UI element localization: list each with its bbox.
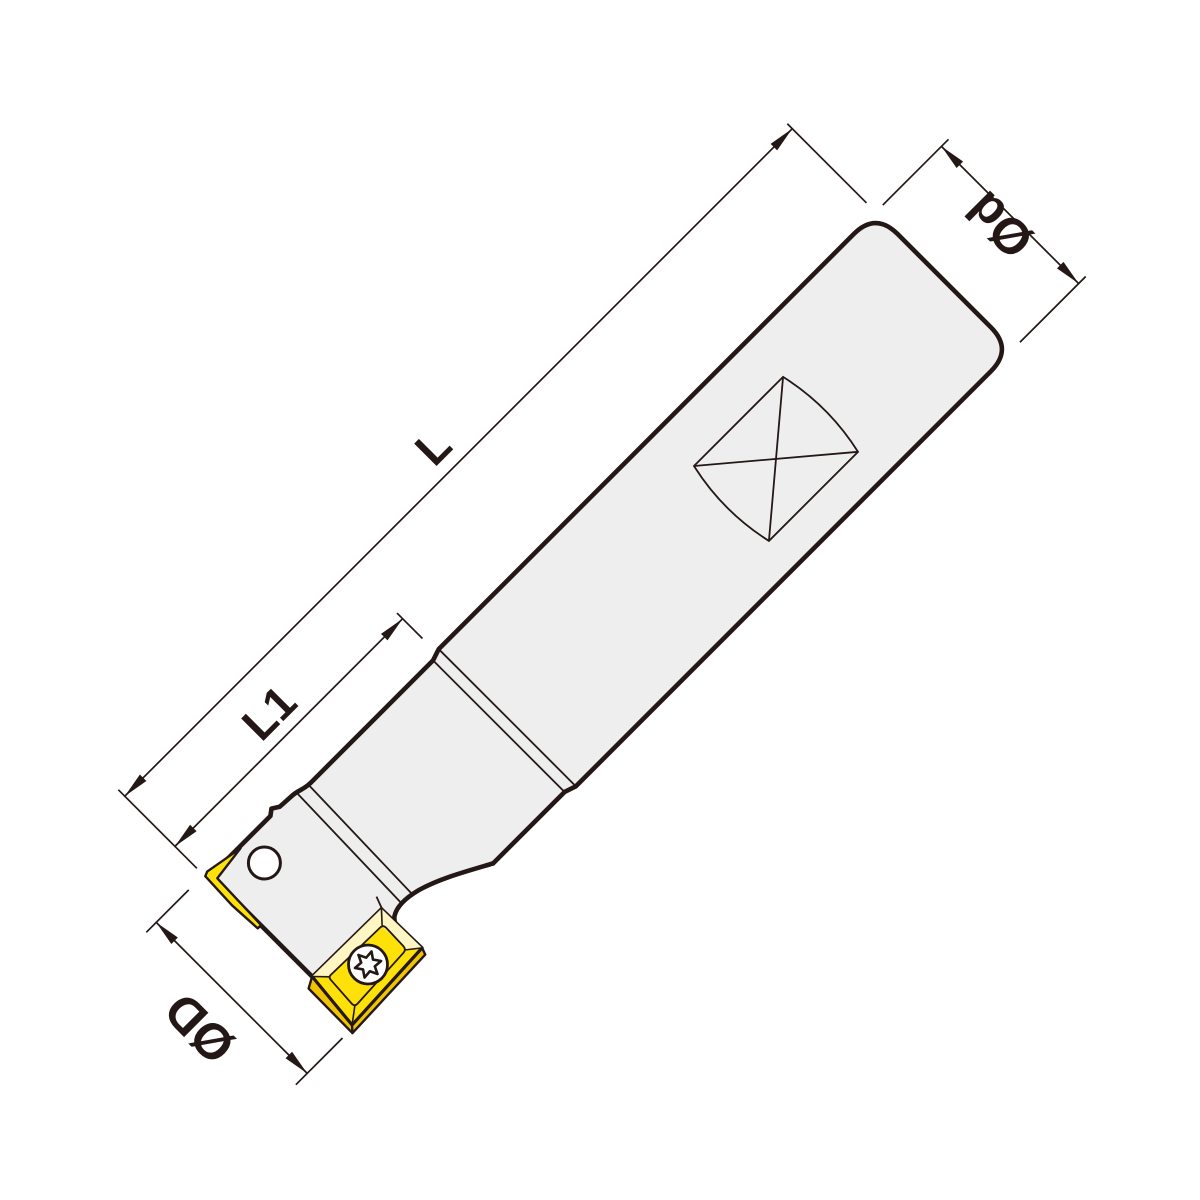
extension-line-cutter-bottom: [296, 1038, 343, 1085]
arrow-L-left-icon: [121, 775, 146, 800]
drawing-canvas: L L1 Ød ØD: [0, 0, 1200, 1200]
arrow-shank-dia-top-icon: [938, 143, 963, 168]
arrow-L1-right-icon: [381, 615, 406, 640]
extension-line-shank-top: [883, 139, 949, 205]
arrow-shank-dia-bottom-icon: [1057, 262, 1082, 287]
label-shank-diameter: Ød: [956, 181, 1045, 270]
arrow-cutter-dia-top-icon: [153, 919, 178, 944]
arrow-L1-left-icon: [172, 825, 197, 850]
label-overall-length: L: [405, 419, 462, 476]
extension-line-head-face: [118, 790, 196, 868]
label-head-length: L1: [232, 675, 307, 750]
arrow-L-right-icon: [771, 125, 796, 150]
extension-line-shank-end: [787, 124, 866, 203]
body-fill: [202, 208, 1021, 1027]
extension-line-transition: [397, 613, 422, 638]
arrow-cutter-dia-bottom-icon: [286, 1052, 311, 1077]
label-cutter-diameter: ØD: [153, 982, 246, 1075]
extension-line-shank-bottom: [1020, 276, 1086, 342]
endmill-technical-drawing: L L1 Ød ØD: [0, 0, 1200, 1200]
extension-line-cutter-top: [146, 890, 188, 932]
tool-body: [202, 208, 1022, 1028]
